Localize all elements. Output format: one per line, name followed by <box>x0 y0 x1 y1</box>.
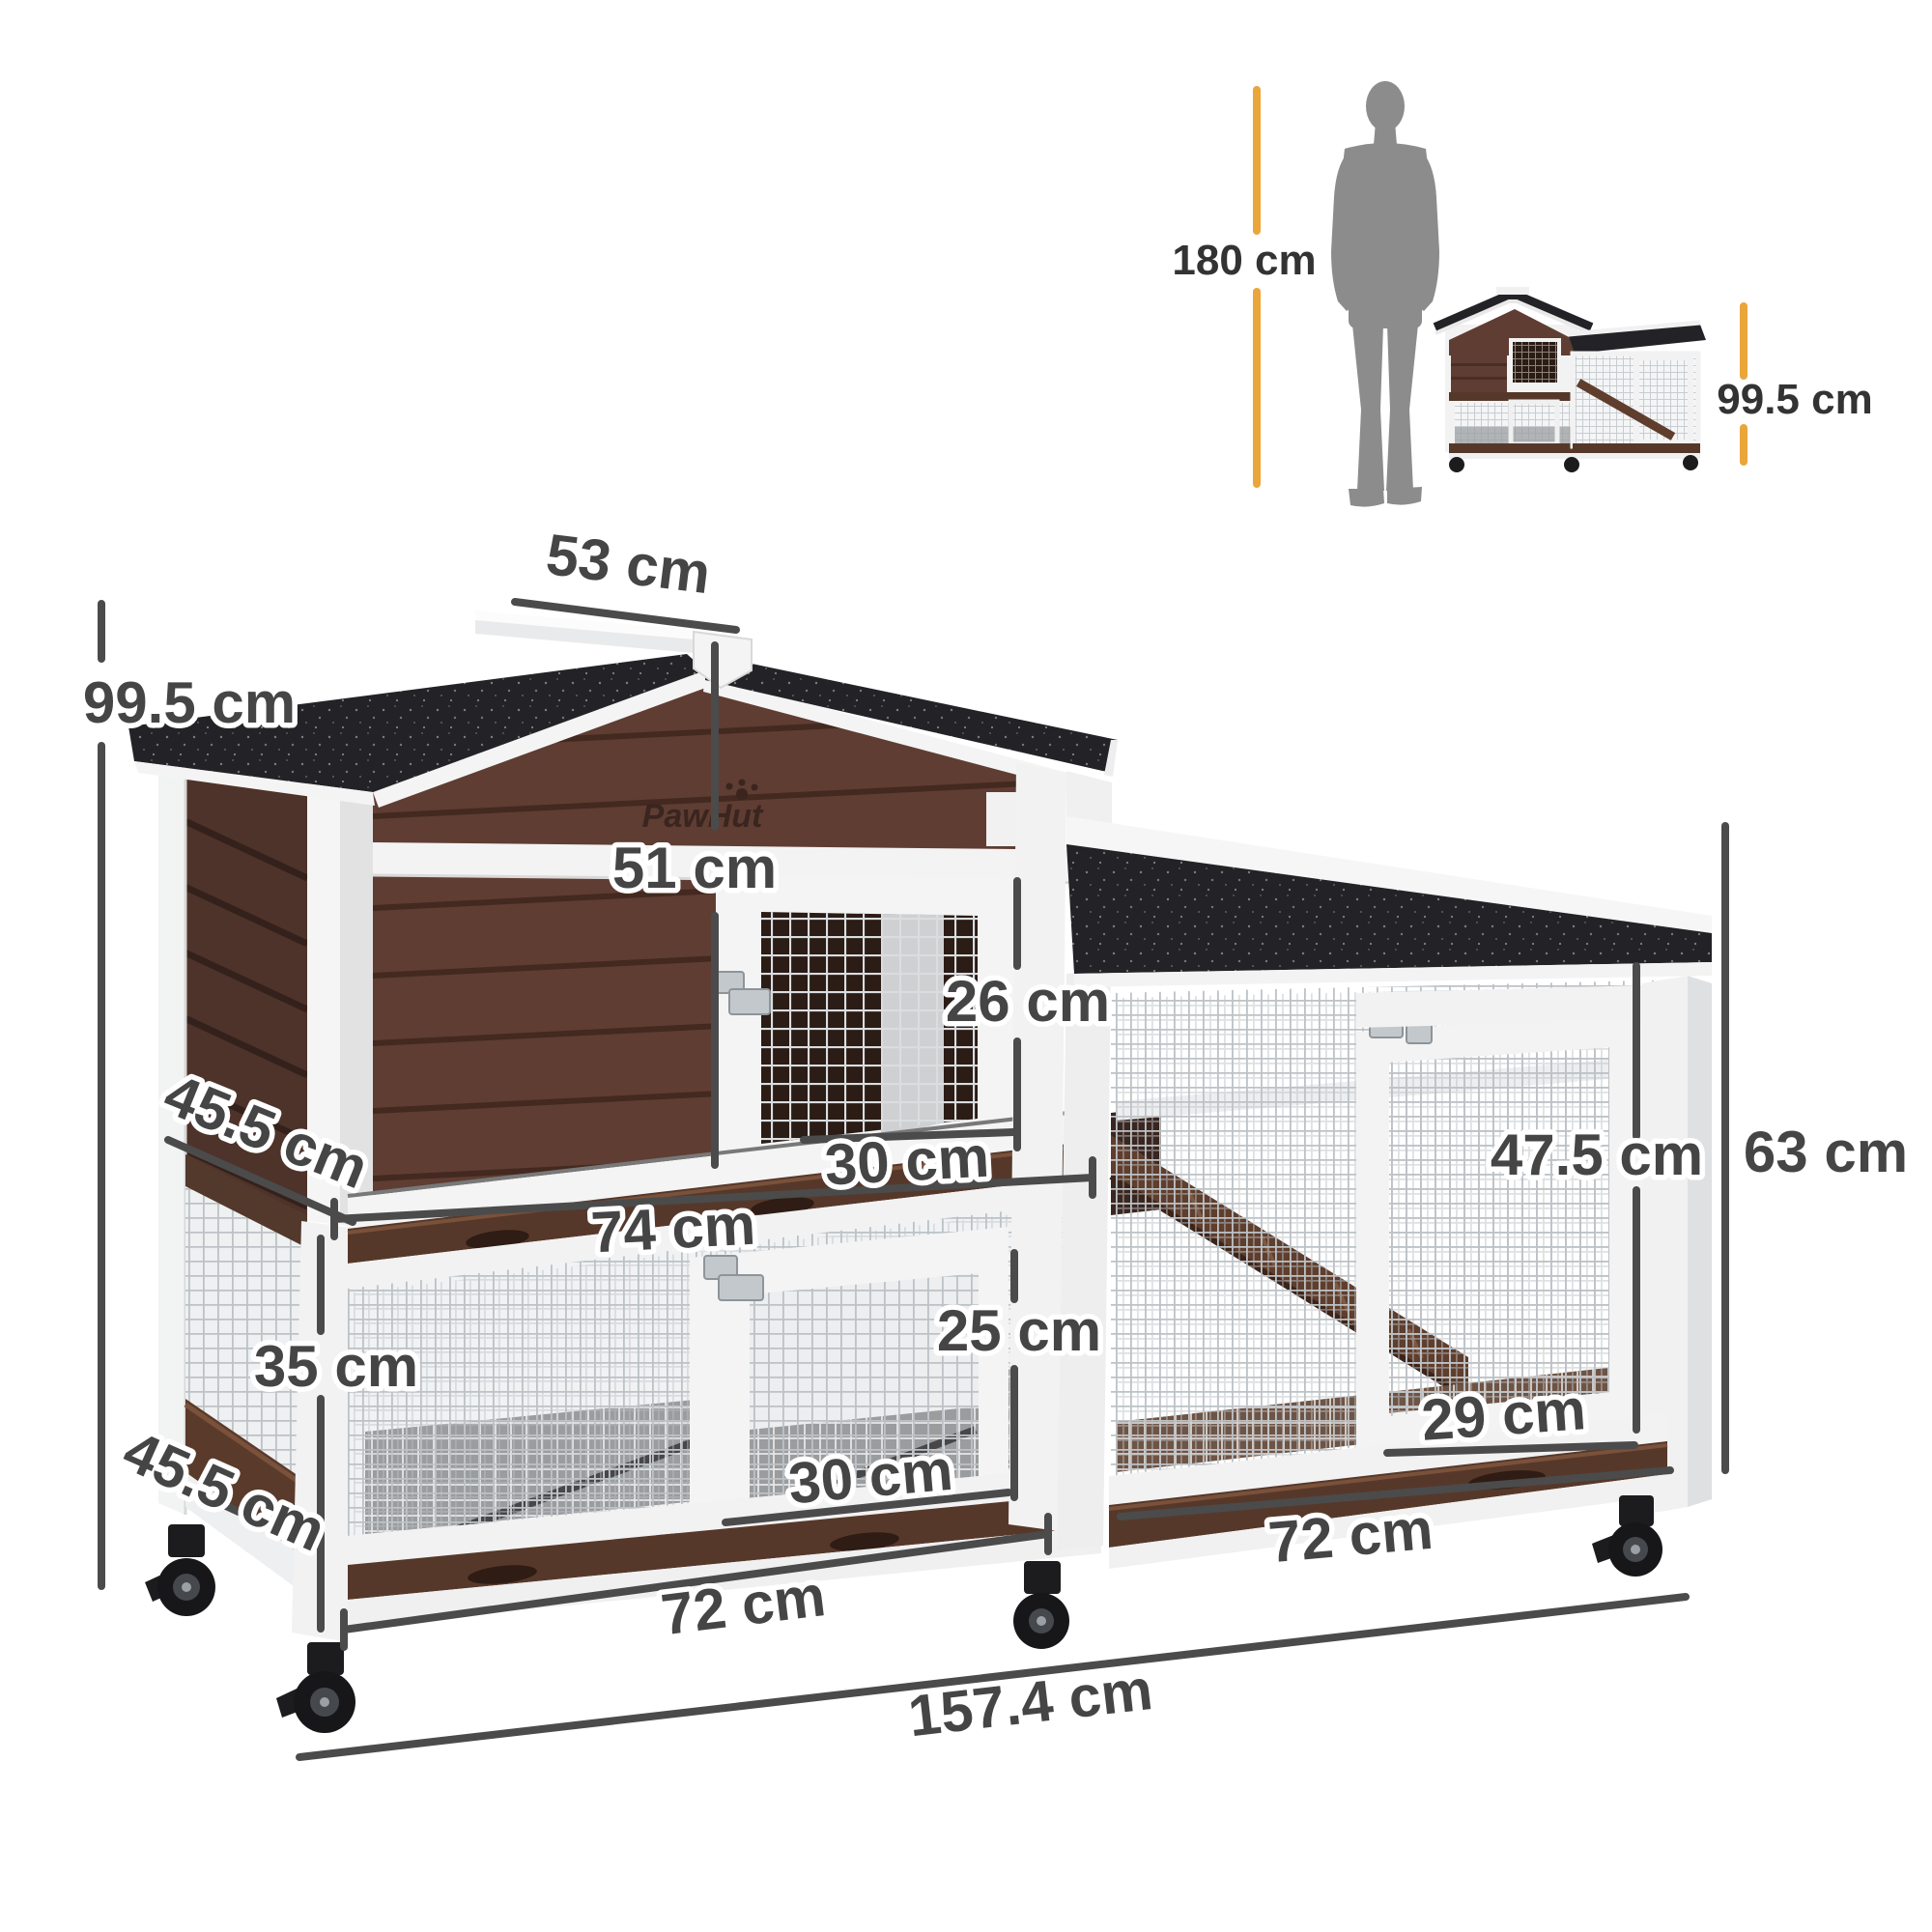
svg-text:29 cm: 29 cm <box>1419 1377 1587 1453</box>
svg-text:51 cm: 51 cm <box>612 836 777 900</box>
svg-text:PawHut: PawHut <box>642 798 764 835</box>
svg-text:74 cm: 74 cm <box>589 1192 756 1265</box>
svg-text:63 cm: 63 cm <box>1744 1120 1908 1184</box>
svg-text:99.5 cm: 99.5 cm <box>1717 376 1872 423</box>
svg-text:35 cm: 35 cm <box>254 1334 418 1399</box>
svg-text:25 cm: 25 cm <box>937 1298 1101 1363</box>
svg-text:30 cm: 30 cm <box>823 1124 990 1198</box>
svg-text:99.5 cm: 99.5 cm <box>83 670 296 735</box>
svg-text:26 cm: 26 cm <box>946 969 1110 1034</box>
svg-text:180 cm: 180 cm <box>1172 237 1316 284</box>
svg-text:47.5 cm: 47.5 cm <box>1491 1122 1703 1187</box>
